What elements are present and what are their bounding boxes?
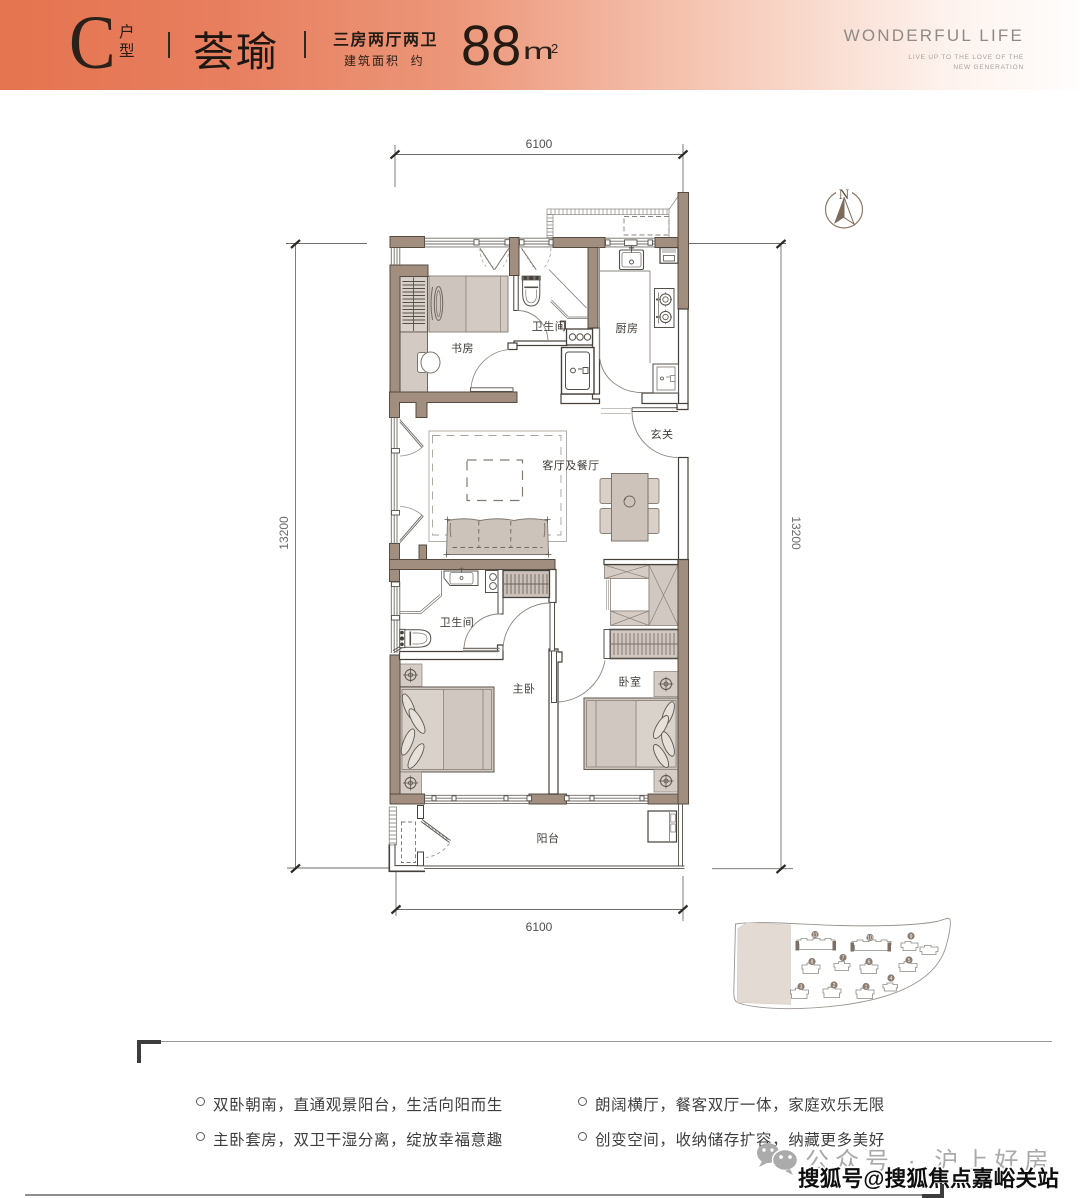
svg-text:7: 7: [842, 955, 845, 961]
svg-text:10: 10: [867, 935, 873, 941]
svg-text:1: 1: [865, 984, 868, 990]
svg-text:4: 4: [890, 976, 893, 982]
svg-text:客厅及餐厅: 客厅及餐厅: [542, 458, 600, 472]
svg-text:卧室: 卧室: [619, 675, 642, 689]
svg-text:玄关: 玄关: [651, 427, 674, 441]
svg-text:6100: 6100: [526, 920, 553, 934]
svg-text:11: 11: [812, 932, 817, 938]
svg-text:卫生间: 卫生间: [440, 615, 475, 629]
svg-text:5: 5: [908, 958, 911, 964]
svg-text:8: 8: [811, 959, 814, 965]
svg-text:13200: 13200: [277, 516, 291, 550]
svg-text:6100: 6100: [526, 137, 553, 151]
svg-text:9: 9: [910, 934, 913, 940]
svg-text:2: 2: [833, 983, 836, 989]
svg-text:3: 3: [800, 984, 803, 990]
svg-text:13200: 13200: [789, 516, 803, 550]
svg-text:6: 6: [868, 959, 871, 965]
svg-text:书房: 书房: [451, 342, 474, 355]
svg-text:阳台: 阳台: [537, 831, 560, 845]
svg-text:卫生间: 卫生间: [532, 319, 567, 333]
svg-text:厨房: 厨房: [616, 322, 639, 335]
svg-text:主卧: 主卧: [513, 683, 536, 696]
